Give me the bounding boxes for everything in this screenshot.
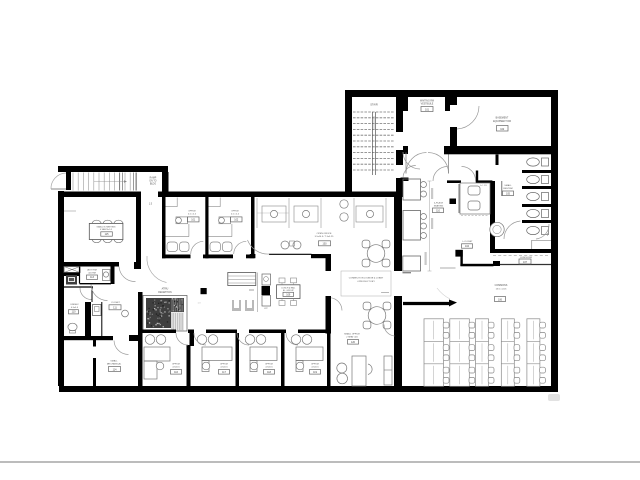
svg-text:104: 104 (465, 245, 470, 248)
svg-text:1.5: 1.5 (149, 204, 153, 206)
svg-text:1.3: 1.3 (197, 303, 201, 305)
svg-text:4x5 RM: 4x5 RM (480, 185, 487, 187)
svg-text:115: 115 (105, 233, 109, 236)
svg-text:OFFICE: OFFICE (265, 364, 274, 366)
svg-text:SMALL OFFICE: SMALL OFFICE (344, 333, 360, 336)
svg-text:SMALL: SMALL (110, 360, 118, 363)
svg-text:111: 111 (113, 307, 117, 310)
svg-text:OFFICE: OFFICE (172, 364, 181, 366)
svg-text:4.5x5.5: 4.5x5.5 (220, 367, 228, 369)
svg-text:4.5x5.5: 4.5x5.5 (172, 367, 180, 369)
svg-text:117: 117 (222, 371, 226, 374)
svg-text:4.5x5.5: 4.5x5.5 (71, 307, 79, 309)
svg-text:4-PLACE: 4-PLACE (434, 202, 444, 205)
svg-text:UNISEX: UNISEX (70, 304, 79, 306)
svg-text:BLDG: BLDG (150, 184, 156, 186)
svg-text:119: 119 (313, 371, 317, 374)
svg-text:WAITING RM: WAITING RM (420, 100, 434, 103)
svg-text:SMALL M. MEETING: SMALL M. MEETING (97, 225, 116, 228)
svg-text:4.5 x 4.5: 4.5 x 4.5 (188, 213, 197, 215)
svg-text:CLOSET: CLOSET (111, 302, 120, 304)
svg-text:110: 110 (436, 209, 440, 212)
svg-text:RECEPTION: RECEPTION (158, 292, 172, 294)
svg-text:4x5 RM: 4x5 RM (88, 272, 96, 274)
svg-text:OPEN OFFICE: OPEN OFFICE (317, 233, 332, 235)
svg-text:4.5x5.5: 4.5x5.5 (265, 367, 273, 369)
svg-text:OFFICE: OFFICE (188, 211, 196, 213)
svg-text:SEATING: SEATING (434, 205, 444, 208)
svg-text:4 SEAT 4x5.5: 4 SEAT 4x5.5 (100, 228, 113, 231)
svg-text:RESTRM: RESTRM (503, 188, 512, 190)
svg-text:101: 101 (425, 108, 430, 111)
svg-text:LUNCH RM: LUNCH RM (520, 257, 532, 259)
svg-text:110: 110 (72, 311, 76, 314)
svg-text:109: 109 (286, 293, 291, 296)
svg-text:EL. GROUP: EL. GROUP (283, 290, 295, 292)
svg-text:OFFICE: OFFICE (220, 364, 229, 366)
svg-text:COMMONS: COMMONS (495, 284, 508, 287)
svg-text:SMALL: SMALL (504, 184, 512, 187)
svg-text:5.5x14.5 / 7.5x5.25: 5.5x14.5 / 7.5x5.25 (315, 236, 334, 238)
svg-text:13.5 x 24.5: 13.5 x 24.5 (496, 288, 508, 290)
svg-text:120: 120 (351, 341, 356, 344)
svg-text:113: 113 (90, 276, 94, 279)
svg-text:102: 102 (500, 128, 505, 131)
svg-text:AV/IT RM: AV/IT RM (87, 268, 96, 271)
svg-text:L-CLOSET: L-CLOSET (462, 241, 473, 243)
svg-text:OFFICE: OFFICE (231, 211, 239, 213)
svg-text:2 SEAT 4x5: 2 SEAT 4x5 (346, 336, 358, 339)
svg-text:106: 106 (498, 298, 503, 301)
svg-text:LUNCH & RAIL: LUNCH & RAIL (281, 286, 296, 289)
svg-text:RAMP: RAMP (150, 177, 157, 180)
svg-text:4 PRODUCT KEY: 4 PRODUCT KEY (357, 281, 375, 283)
svg-text:OFFICE: OFFICE (311, 364, 320, 366)
svg-text:101: 101 (191, 219, 196, 222)
svg-text:103: 103 (323, 243, 328, 246)
svg-text:114: 114 (113, 368, 117, 371)
svg-text:STAIR: STAIR (370, 103, 378, 107)
svg-text:4.5 x 4.5: 4.5 x 4.5 (231, 213, 240, 215)
svg-text:116: 116 (174, 371, 178, 374)
svg-text:EQUIPMENT RM: EQUIPMENT RM (493, 121, 511, 123)
svg-text:118: 118 (267, 371, 271, 374)
svg-text:KIT: KIT (264, 308, 268, 310)
svg-text:DN TO: DN TO (149, 181, 156, 183)
svg-text:VESTIBULE: VESTIBULE (421, 104, 434, 106)
svg-text:ATRIU: ATRIU (162, 288, 169, 291)
svg-text:105: 105 (506, 192, 511, 195)
svg-text:BASEMENT: BASEMENT (496, 117, 509, 120)
svg-text:102: 102 (234, 219, 239, 222)
svg-text:4.5x5.5: 4.5x5.5 (311, 367, 319, 369)
svg-text:CONNECTION LOUNGE & LOBBY: CONNECTION LOUNGE & LOBBY (349, 278, 384, 280)
svg-text:107: 107 (523, 261, 528, 264)
svg-text:MECHANICAL: MECHANICAL (107, 363, 122, 366)
